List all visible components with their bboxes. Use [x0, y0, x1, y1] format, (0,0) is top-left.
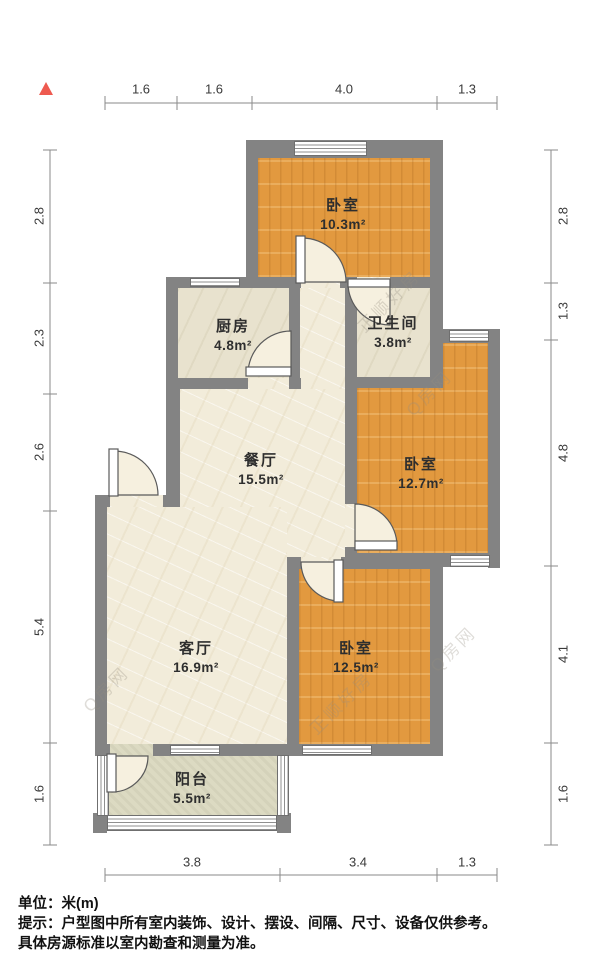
dim-label: 1.6: [132, 82, 150, 97]
room-name: 阳台: [173, 768, 211, 789]
door-leaf: [296, 236, 305, 283]
door-entry: [114, 451, 158, 495]
room-name: 卧室: [320, 194, 366, 215]
dim-label: 2.8: [32, 207, 47, 225]
room-name: 餐厅: [238, 449, 284, 470]
room-label-dining: 餐厅 15.5m²: [238, 449, 284, 487]
dim-label: 2.6: [32, 443, 47, 461]
dim-label: 1.6: [32, 785, 47, 803]
door-leaf: [246, 367, 291, 376]
dim-label: 4.0: [335, 82, 353, 97]
footer-notes: 单位：米(m) 提示：户型图中所有室内装饰、设计、摆设、间隔、尺寸、设备仅供参考…: [18, 894, 590, 954]
room-area: 10.3m²: [320, 217, 366, 232]
room-area: 12.5m²: [333, 660, 379, 675]
room-name: 卧室: [333, 637, 379, 658]
dim-label: 3.4: [349, 855, 367, 870]
unit-note: 单位：米(m): [18, 894, 590, 914]
room-area: 3.8m²: [367, 335, 418, 350]
door-leaf: [109, 449, 118, 496]
dim-label: 4.8: [556, 444, 571, 462]
tip-note-line2: 具体房源标准以室内勘查和测量为准。: [18, 934, 590, 954]
door-leaf: [355, 541, 397, 550]
room-area: 12.7m²: [398, 476, 444, 491]
dim-label: 1.6: [556, 785, 571, 803]
dim-label: 3.8: [183, 855, 201, 870]
floorplan-page: 1.6 1.6 4.0 1.3 3.8 3.4 1.3 2.8 2.3 2.6 …: [0, 0, 600, 976]
dim-label: 5.4: [32, 618, 47, 636]
dim-label: 1.3: [556, 302, 571, 320]
room-label-bedroom-mid: 卧室 12.7m²: [398, 453, 444, 491]
doors-and-dimension-lines: [0, 0, 600, 976]
door-bedroom-mid: [355, 504, 397, 546]
room-label-kitchen: 厨房 4.8m²: [214, 315, 252, 353]
room-label-bedroom-bottom: 卧室 12.5m²: [333, 637, 379, 675]
room-name: 厨房: [214, 315, 252, 336]
room-name: 卫生间: [367, 312, 418, 333]
room-area: 5.5m²: [173, 791, 211, 806]
dim-label: 2.8: [556, 207, 571, 225]
room-label-living: 客厅 16.9m²: [173, 637, 219, 675]
door-balcony: [112, 756, 148, 792]
room-area: 15.5m²: [238, 472, 284, 487]
room-name: 客厅: [173, 637, 219, 658]
room-name: 卧室: [398, 453, 444, 474]
dim-label: 1.3: [458, 82, 476, 97]
dim-label: 2.3: [32, 329, 47, 347]
room-area: 16.9m²: [173, 660, 219, 675]
dim-label: 1.3: [458, 855, 476, 870]
door-leaf: [334, 560, 343, 602]
room-area: 4.8m²: [214, 338, 252, 353]
dim-label: 1.6: [205, 82, 223, 97]
room-label-balcony: 阳台 5.5m²: [173, 768, 211, 806]
room-label-bedroom-top: 卧室 10.3m²: [320, 194, 366, 232]
dim-label: 4.1: [556, 645, 571, 663]
tip-note-line1: 提示：户型图中所有室内装饰、设计、摆设、间隔、尺寸、设备仅供参考。: [18, 914, 590, 934]
door-leaf: [107, 754, 116, 792]
door-bedroom-top: [302, 238, 346, 282]
room-label-bathroom: 卫生间 3.8m²: [367, 312, 418, 350]
